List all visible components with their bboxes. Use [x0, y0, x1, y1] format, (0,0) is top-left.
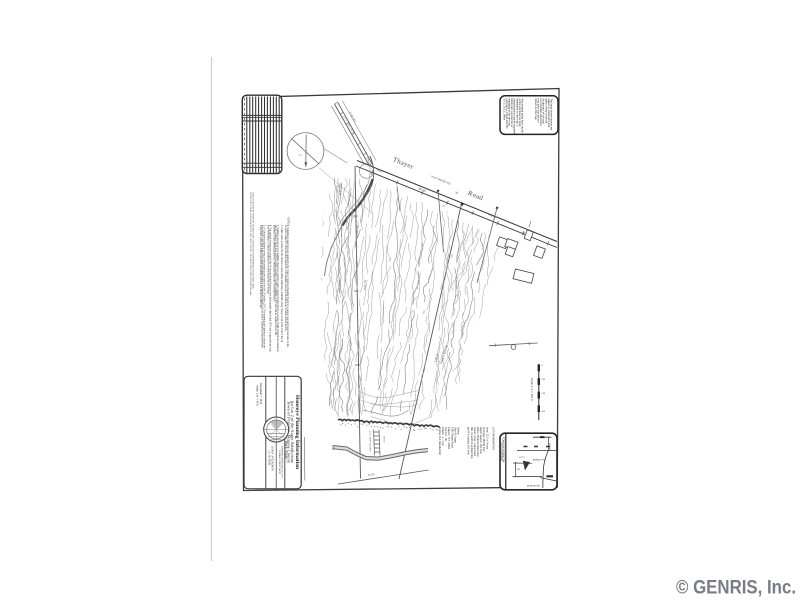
- svg-text:N.Y.S. D.E.C. office.: N.Y.S. D.E.C. office.: [502, 99, 505, 122]
- svg-text:Scale: 1 in. = 40 ft.: Scale: 1 in. = 40 ft.: [256, 385, 260, 407]
- svg-text:shown on this map.: shown on this map.: [534, 99, 537, 121]
- svg-text:53 MAIN STREET WEST: 53 MAIN STREET WEST: [278, 450, 281, 475]
- svg-text:MOSELEY RD: MOSELEY RD: [527, 486, 541, 488]
- svg-text:if any exist, were not located: if any exist, were not located as part o…: [259, 225, 262, 309]
- svg-text:N 0 14' E: N 0 14' E: [363, 280, 366, 291]
- svg-text:AYRAULT RD: AYRAULT RD: [533, 459, 546, 462]
- svg-text:N: N: [300, 153, 302, 157]
- svg-text:Zoning: R-A (Residential): Zoning: R-A (Residential): [438, 427, 441, 455]
- svg-text:field verification of critical: field verification of critical elevation…: [267, 225, 270, 295]
- svg-text:JOHN A. RASZKOWSKI: JOHN A. RASZKOWSKI: [271, 446, 274, 471]
- svg-text:LOT 2: LOT 2: [519, 457, 525, 459]
- svg-text:SURVEYOR'S SEAL IS A VIOLATION: SURVEYOR'S SEAL IS A VIOLATION OF SECTIO…: [249, 192, 252, 296]
- svg-text:per R-A zoning: 150 Feet: per R-A zoning: 150 Feet: [467, 427, 470, 455]
- svg-text:L.S. No. 42689: L.S. No. 42689: [268, 450, 270, 466]
- svg-text:2. Public water provided by th: 2. Public water provided by the Monroe C…: [280, 225, 283, 343]
- svg-text:UNAUTHORIZED ALTERATION OR ADD: UNAUTHORIZED ALTERATION OR ADDITION TO A…: [252, 192, 255, 289]
- svg-text:DITCH: DITCH: [383, 436, 385, 443]
- svg-text:12 in. CMP CULVERT: 12 in. CMP CULVERT: [369, 431, 371, 453]
- svg-text:LOT INFORMATION: LOT INFORMATION: [492, 427, 495, 450]
- svg-text:LOCATION MAP: LOCATION MAP: [499, 442, 502, 461]
- svg-text:issuance of any building permi: issuance of any building permit for cons…: [272, 225, 275, 302]
- svg-text:lot and is subject to final si: lot and is subject to final site plan ap…: [284, 225, 287, 332]
- svg-text:THAYER: THAYER: [548, 443, 551, 452]
- svg-text:Scale 1 in = 100 ft: Scale 1 in = 100 ft: [530, 378, 534, 401]
- svg-text:© GENRIS, Inc.: © GENRIS, Inc.: [676, 578, 796, 599]
